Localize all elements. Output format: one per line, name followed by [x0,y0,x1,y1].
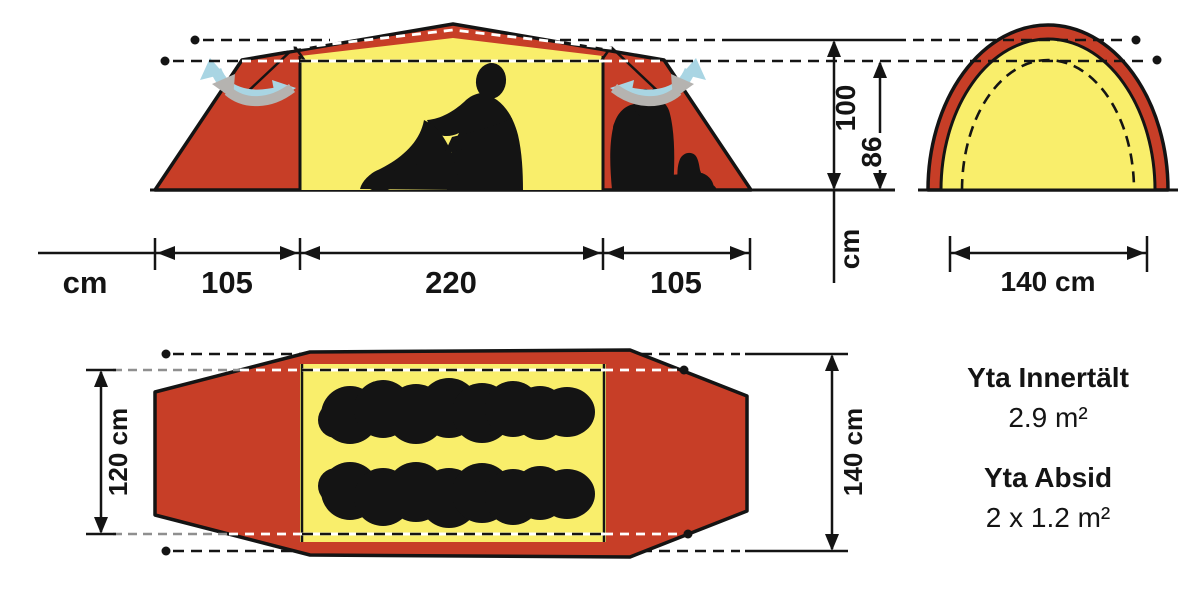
reference-dot [1132,36,1141,45]
vestibule-width-label: 105 [650,265,702,300]
dim-arrow [825,534,839,551]
reference-dot [161,57,170,66]
reference-dot [1153,56,1162,65]
side-width-dimension: cm 105 220 105 [38,238,750,300]
dim-arrow [302,246,320,260]
dim-arrow [94,370,108,387]
tent-dimensions-diagram: 140 cm 100 86 cm [0,0,1200,602]
height-unit-label: cm [834,229,865,269]
vestibule-area-title: Yta Absid [984,462,1112,493]
reference-dot [191,36,200,45]
reference-dot [162,350,171,359]
width-unit-label: cm [63,265,108,300]
inner-tent-area-value: 2.9 m² [1008,402,1087,433]
top-outer-width-label: 140 cm [838,408,868,496]
top-inner-width-label: 120 cm [103,408,133,496]
outer-height-label: 100 [830,85,861,132]
inner-tent-area-title: Yta Innertält [967,362,1129,393]
spec-text: Yta Innertält 2.9 m² Yta Absid 2 x 1.2 m… [967,362,1129,533]
inner-height-label: 86 [856,136,887,167]
height-dimension: 100 86 cm [827,40,887,283]
dim-arrow [952,246,970,260]
side-view [150,24,895,195]
dim-arrow [583,246,601,260]
guy-point-dot [684,530,693,539]
dim-arrow [827,40,841,57]
inner-width-label: 220 [425,265,477,300]
dim-arrow [157,246,175,260]
dim-arrow [1127,246,1145,260]
guy-point-dot [680,366,689,375]
top-view: 120 cm 140 cm [86,350,868,558]
front-view: 140 cm [918,25,1178,297]
dim-arrow [280,246,298,260]
dim-arrow [873,61,887,78]
vestibule-width-label: 105 [201,265,253,300]
diagram-canvas: 140 cm 100 86 cm [0,0,1200,602]
dim-arrow [606,246,624,260]
dim-arrow [827,173,841,190]
dim-arrow [825,354,839,371]
dim-arrow [873,173,887,190]
vestibule-area-value: 2 x 1.2 m² [986,502,1110,533]
front-width-label: 140 cm [1001,266,1096,297]
dim-arrow [94,517,108,534]
reference-dot [162,547,171,556]
dim-arrow [730,246,748,260]
